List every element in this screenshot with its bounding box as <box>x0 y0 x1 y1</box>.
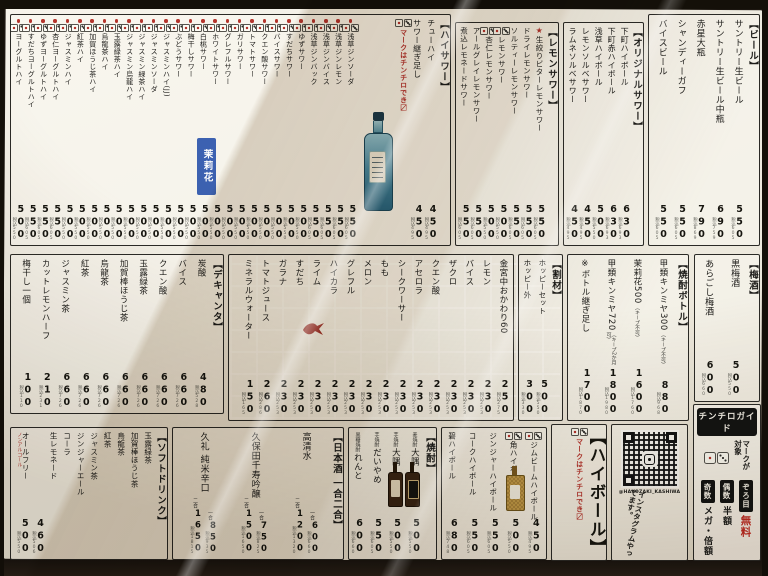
item-name: すだち <box>294 259 303 286</box>
menu-item: 生レモネード <box>47 432 61 555</box>
red-dot <box>152 19 156 23</box>
blue-stamp: 茉莉花 <box>197 138 216 195</box>
dice-icon <box>525 432 542 440</box>
price-value: 600 <box>311 521 320 556</box>
price-value: 660 <box>101 372 111 410</box>
price-value: 630 <box>622 204 632 242</box>
item-price: 税込253230 <box>360 379 374 417</box>
item-name: ジンジャーエール <box>76 432 84 496</box>
price-value: 230 <box>483 379 493 417</box>
item-name: 赤星大瓶 <box>694 19 703 57</box>
menu-item: 黒糖焼酎れんと税込660600 <box>348 432 367 555</box>
star-icon: ★ <box>536 27 543 35</box>
item-name: ガラナ <box>277 259 286 286</box>
item-name: 浅草ジンソーダ <box>347 33 354 86</box>
instagram-box: @HAKOZAKI_KASHIWA インスタグラムやってます。 <box>611 424 688 561</box>
section-warizai: 【割材】 ホッピーセット税込550500ホッピー外税込330300 <box>518 254 563 421</box>
chinchiro-note-text: マークはチンチロでき〼 <box>399 29 406 112</box>
chinchiro-rule-odd: 奇数 メガ・倍額 <box>701 480 715 556</box>
item-price: 税込693630 <box>617 204 631 242</box>
item-name: 紅茶 <box>103 432 111 448</box>
rule-roll: ぞろ目 <box>739 480 753 512</box>
item-name: 梅干しサワー <box>187 33 194 78</box>
item-name: 甲類キンミヤ300 <box>658 259 667 331</box>
item-name: 白桃サワー <box>199 33 206 71</box>
item-name: 烏龍茶 <box>117 432 125 456</box>
item-name: 下町赤ハイボール <box>607 27 615 95</box>
item-price: 税込759690 <box>711 204 725 242</box>
menu-item: シャンディーガフ税込605550 <box>671 19 690 241</box>
red-dot <box>275 19 279 23</box>
item-name: ミネラルウォーター <box>243 259 252 340</box>
item-name: ジャスミン緑茶ハイ <box>138 33 145 101</box>
menu-item: 加賀棒ほうじ茶税込726660 <box>113 259 133 409</box>
menu-item: 加賀棒ほうじ茶 <box>128 432 142 555</box>
menu-item: 高清水一合税込660600二合税込13201200 <box>280 432 331 555</box>
chinchiro-note: マークはチンチロでき〼 <box>397 19 410 241</box>
item-price: 500 <box>20 518 30 556</box>
section-title-lemon-sour: 【レモンサワー】 <box>547 27 557 241</box>
item-price: 税込253230 <box>275 379 289 417</box>
price-value: 230 <box>296 379 306 417</box>
dice-icon <box>505 432 522 440</box>
item-price: 税込605550 <box>654 204 668 242</box>
item-name: メロン <box>362 259 371 286</box>
item-price: 税込550500 <box>407 518 421 556</box>
price-value: 660 <box>62 372 72 410</box>
menu-item: 黒梅酒税込550500 <box>721 259 747 397</box>
item-name: ヨーグルトハイ <box>15 33 22 86</box>
menu-item: ★生絞りビターレモンサワー税込605550 <box>533 27 546 241</box>
instagram-caption: インスタグラムやってます。 <box>614 488 646 561</box>
price-value: 550 <box>490 518 500 556</box>
price-value: 1650 <box>194 509 203 555</box>
red-dot <box>17 19 21 23</box>
item-name: ホッピー外 <box>523 259 531 299</box>
item-name: 久保田千寿吟醸 <box>249 432 258 499</box>
item-price: 税込18701700 <box>578 368 592 416</box>
item-price: 税込231210 <box>38 372 52 410</box>
red-dot <box>312 19 316 23</box>
red-dot <box>226 19 230 23</box>
item-prefix: 芋焼酎 <box>393 432 398 447</box>
item-note: （キープ不可） <box>660 332 665 367</box>
item-name: アールグレイレモンサワー <box>472 27 480 123</box>
item-name: グレフル <box>345 259 354 295</box>
item-price: 税込330300 <box>520 379 534 417</box>
menu-item: 碧ハイボール税込748680 <box>442 432 463 555</box>
price-value: 500 <box>412 518 422 556</box>
item-price: 税込495450 <box>410 204 424 242</box>
section-title-decanter: 【デキャンタ】 <box>212 259 222 409</box>
item-name: 生レモネード <box>49 432 57 480</box>
red-dot <box>78 19 82 23</box>
item-name: 甲類キンミヤ720 <box>606 259 615 331</box>
menu-item: 浅草ハイボール税込550500 <box>592 27 605 241</box>
menu-item: 煮込レモネードサワー税込605550 <box>457 27 470 241</box>
red-dot <box>349 19 353 23</box>
menu-item: 赤星大瓶税込869790 <box>690 19 709 241</box>
price-value: 250 <box>500 379 510 417</box>
price-value: 500 <box>511 518 521 556</box>
item-name: ドライレモンサワー <box>523 27 531 99</box>
menu-item: ジャスミン茶税込726660 <box>55 259 75 409</box>
unit-label: 一合 <box>207 510 214 520</box>
item-price: 一合税込935850 <box>204 510 217 556</box>
red-dot <box>324 19 328 23</box>
item-price: 税込726660 <box>116 372 130 410</box>
menu-item: 下町赤ハイボール税込693630 <box>605 27 618 241</box>
item-name: ※ボトル継ぎ足し <box>580 259 589 333</box>
item-name: サワー継ぎ足し <box>412 19 420 79</box>
menu-item: クエン酸税込253230 <box>426 259 443 416</box>
item-price: 税込19801800 <box>604 368 618 416</box>
menu-item: 金宮中おかわり60税込275250 <box>494 259 511 416</box>
item-price: 税込605550 <box>369 518 383 556</box>
menu-item: ガラナ税込253230 <box>273 259 290 416</box>
item-name: ソルティーレモンサワー <box>510 27 518 115</box>
menu-item: レモンソルベサワー税込495450 <box>579 27 592 241</box>
menu-item: コークハイボール税込605550 <box>462 432 483 555</box>
item-price: 税込253230 <box>326 379 340 417</box>
item-name: バイス <box>177 259 186 286</box>
item-price: 税込110100 <box>18 372 32 410</box>
menu-item: 浅草ジンソーダ税込605550 <box>344 19 356 241</box>
menu-item: ※ボトル継ぎ足し税込18701700 <box>572 259 598 416</box>
item-name: シークワーサー <box>396 259 405 322</box>
item-name: ジャスミン烏龍ハイ <box>125 33 132 101</box>
unit-label: 二合 <box>192 498 199 508</box>
photo-edge-top <box>0 0 768 9</box>
price-value: 230 <box>466 379 476 417</box>
item-name: 浅草ジンレモン <box>335 33 342 86</box>
menu-item: 玉露緑茶税込726660 <box>133 259 153 409</box>
menu-item: 烏龍茶 <box>114 432 128 555</box>
item-name: 杏仁ヨーグルトハイ <box>52 33 59 101</box>
item-name: ホッピーセット <box>538 259 546 315</box>
menu-item: ミネラルウォーター税込165150 <box>239 259 256 416</box>
blue-stamp-text: 茉莉花 <box>200 149 214 184</box>
section-title-umeshu: 【梅酒】 <box>748 259 758 397</box>
item-price: 税込253230 <box>411 379 425 417</box>
item-name: 紅茶 <box>79 259 88 277</box>
item-price: 税込726660 <box>77 372 91 410</box>
chinchiro-guide: チンチロガイド マークが対象 ぞろ目 無料 偶数 半額 奇数 メガ・倍額 <box>693 404 761 561</box>
menu-item: ハイカラ税込253230 <box>324 259 341 416</box>
item-prefix: 黒糖焼酎 <box>355 432 360 452</box>
price-value: 100 <box>23 372 33 410</box>
red-dot <box>250 19 254 23</box>
section-mixers: 金宮中おかわり60税込275250レモン税込253230バイス税込253230ザ… <box>228 254 514 421</box>
item-name: 梅干し一個 <box>21 259 30 304</box>
section-title-shochu-bottle: 【焼酎ボトル】 <box>677 259 687 416</box>
item-price: 税込495450 <box>527 518 541 556</box>
red-dot <box>164 19 168 23</box>
item-price: 税込726660 <box>174 372 188 410</box>
item-price: 税込605550 <box>673 204 687 242</box>
item-name: すだちサワー <box>285 33 292 78</box>
item-name: グレフルサワー <box>224 33 231 86</box>
item-name: 杏仁レモンサワー <box>485 36 493 100</box>
price-value: 500 <box>393 518 403 556</box>
red-dot <box>103 19 107 23</box>
item-name: サントリー生ビール中瓶 <box>713 19 722 124</box>
red-dot <box>299 19 303 23</box>
item-price: 税込550500 <box>591 204 605 242</box>
price-value: 1500 <box>245 509 254 555</box>
price-value: 150 <box>245 379 255 417</box>
chinchiro-note-text: マークはチンチロでき〼 <box>575 438 582 521</box>
item-name: ジャスミン茶 <box>90 432 98 480</box>
menu-item: ホッピー外税込330300 <box>520 259 535 416</box>
item-price: 税込550500 <box>388 518 402 556</box>
red-dot <box>41 19 45 23</box>
menu-item: アセロラ税込253230 <box>409 259 426 416</box>
red-dot <box>189 19 193 23</box>
item-name: ザクロ <box>447 259 456 286</box>
item-name: ゆずヨーグルトハイ <box>39 33 46 101</box>
price-value: 600 <box>705 360 715 398</box>
section-original-sour: 【オリジナルサワー】 下町ハイボール税込693630下町赤ハイボール税込6936… <box>563 22 644 246</box>
rule-roll: 偶数 <box>720 480 734 503</box>
item-name: コーラ <box>63 432 71 456</box>
price-value: 230 <box>347 379 357 417</box>
price-value: 550 <box>735 204 745 242</box>
menu-item: 烏龍茶税込726660 <box>94 259 114 409</box>
chinchiro-target: マークが対象 <box>733 440 750 476</box>
item-name: 玉露緑茶 <box>138 259 147 295</box>
menu-item: グレフル税込253230 <box>341 259 358 416</box>
item-price: 税込165150 <box>241 379 255 417</box>
chinchiro-guide-title: チンチロガイド <box>697 408 757 436</box>
item-name: ジンジャーハイボール <box>489 432 497 512</box>
chinchiro-rule-zorome: ぞろ目 無料 <box>739 480 754 556</box>
price-value: 550 <box>678 204 688 242</box>
price-value: 450 <box>414 204 424 242</box>
dice-icon <box>571 428 588 436</box>
menu-item: もも税込253230 <box>375 259 392 416</box>
item-name: 生絞りビターレモンサワー <box>535 36 543 132</box>
item-name: ジムビームハイボール <box>530 441 538 521</box>
menu-item: 紅茶税込726660 <box>74 259 94 409</box>
item-name: ジャスミン茶 <box>60 259 69 313</box>
item-price: 税込550500 <box>506 518 520 556</box>
item-price: 税込253230 <box>445 379 459 417</box>
item-price: 税込605550 <box>730 204 744 242</box>
red-dot <box>176 19 180 23</box>
menu-item: クエン酸税込726660 <box>152 259 172 409</box>
item-name: ジャスミンソーダ <box>150 33 157 93</box>
item-name: ハイカラ <box>328 259 337 295</box>
unit-label: 一合 <box>258 510 265 520</box>
item-name: もも <box>379 259 388 277</box>
price-value: 230 <box>415 379 425 417</box>
item-name: 加賀棒ほうじ茶 <box>118 259 127 322</box>
price-value: 660 <box>120 372 130 410</box>
item-name: 高清水 <box>300 432 309 461</box>
rule-result: 半額 <box>720 506 733 526</box>
item-price: 税込253230 <box>309 379 323 417</box>
item-price: 税込253230 <box>394 379 408 417</box>
menu-item: 久礼 純米辛口一合税込935850二合税込18151650 <box>178 432 229 555</box>
item-price: 税込605550 <box>532 204 546 242</box>
menu-item: 久保田千寿吟醸一合税込825750二合税込16501500 <box>229 432 280 555</box>
item-name: ホワイトサワー <box>212 33 219 86</box>
photo-edge-bottom <box>0 560 768 576</box>
section-shochu-bottle: 【焼酎ボトル】 甲類キンミヤ300（キープ不可）税込968880茉莉花500（キ… <box>567 254 689 421</box>
menu-item: ジンジャーハイボール税込605550 <box>483 432 504 555</box>
red-dot <box>140 19 144 23</box>
menu-item: サワー継ぎ足し税込495450 <box>410 19 424 241</box>
item-name: クエン酸 <box>157 259 166 295</box>
item-name: ジャスミンハイ(JJ) <box>162 33 169 97</box>
price-value: 660 <box>140 372 150 410</box>
item-price: 税込726660 <box>96 372 110 410</box>
gin-bottle-illustration <box>358 112 398 216</box>
item-name: バイスサワー <box>273 33 280 78</box>
izakaya-menu-photo: 【ハイサワー】 チューハイ税込495450サワー継ぎ足し税込495450 マーク… <box>0 0 768 576</box>
price-value: 680 <box>449 518 459 556</box>
menu-item: 芋焼酎だいやめ税込605550 <box>367 432 386 555</box>
item-name: 下町ハイボール <box>620 27 628 87</box>
item-price: 税込253230 <box>377 379 391 417</box>
item-price: 税込726660 <box>155 372 169 410</box>
section-highball-items: ジムビームハイボール税込495450角ハイボール税込550500ジンジャーハイボ… <box>441 427 547 560</box>
item-name: ライム <box>311 259 320 286</box>
red-dot <box>29 19 33 23</box>
item-name: 茉莉花500 <box>632 259 641 304</box>
item-name: ジャスミンハイ <box>64 33 71 86</box>
price-value: 1600 <box>634 368 644 416</box>
highball-title: 【ハイボール】 <box>588 428 605 557</box>
price-value: 880 <box>660 380 670 416</box>
item-price: 税込550500 <box>727 360 741 398</box>
section-title-softdrink: 【ソフトドリンク】 <box>156 432 166 555</box>
item-price: 税込253230 <box>343 379 357 417</box>
menu-item: あらごし梅酒税込660600 <box>695 259 721 397</box>
unit-label: 二合 <box>243 498 250 508</box>
item-name: クエン酸サワー <box>261 33 268 86</box>
price-value: 1700 <box>582 368 592 416</box>
item-name: 紅茶ハイ <box>76 33 83 63</box>
item-name: 浅草ハイボール <box>594 27 602 87</box>
item-name: 碧ハイボール <box>448 432 456 480</box>
item-price: 税込275250 <box>496 379 510 417</box>
price-value: 230 <box>279 379 289 417</box>
item-price: 税込495450 <box>578 204 592 242</box>
red-dot <box>213 19 217 23</box>
item-price: 一合税込660600 <box>306 510 319 556</box>
price-value: 660 <box>179 372 189 410</box>
item-name: トマトジュース <box>260 259 269 322</box>
item-name: 浅草ジンバック <box>310 33 317 86</box>
item-name: チューハイ <box>426 19 434 62</box>
item-name: 浅草ジンバイス <box>322 33 329 86</box>
item-price: 税込748680 <box>445 518 459 556</box>
price-value: 550 <box>537 204 547 242</box>
menu-item: ソルティーレモンサワー税込605550 <box>508 27 521 241</box>
price-value: 1200 <box>296 509 305 555</box>
red-dot <box>66 19 70 23</box>
item-name: ラムネソルベサワー <box>568 27 576 104</box>
item-price: 税込968880 <box>656 380 670 416</box>
rule-result: 無料 <box>739 515 754 538</box>
menu-item: メロン税込253230 <box>358 259 375 416</box>
price-value: 660 <box>81 372 91 410</box>
menu-item: ジムビームハイボール税込495450 <box>524 432 545 555</box>
menu-item: 茉莉花500（キープ不可）税込17601600 <box>624 259 650 416</box>
section-title-warizai: 【割材】 <box>551 259 561 416</box>
item-prefix: 芋焼酎 <box>374 432 379 447</box>
shochu-bottles-illustration <box>388 462 418 507</box>
item-price: 二合税込13201200 <box>291 498 304 555</box>
section-highball-header: 【ハイボール】 マークはチンチロでき〼 <box>551 424 607 561</box>
section-title-sake: 【日本酒 一合二合】 <box>332 432 342 555</box>
red-dot <box>287 19 291 23</box>
item-price: 税込869790 <box>692 204 706 242</box>
price-value: 210 <box>42 372 52 410</box>
price-value: 550 <box>470 518 480 556</box>
item-price: 二合税込16501500 <box>240 498 253 555</box>
item-name: カットレモンハーフ <box>40 259 49 340</box>
menu-item: サントリー生ビール税込605550 <box>728 19 747 241</box>
price-value: 300 <box>525 379 535 417</box>
item-price: 税込253230 <box>479 379 493 417</box>
rule-roll: 奇数 <box>701 480 715 503</box>
red-dot <box>127 19 131 23</box>
item-name: 玉露緑茶ハイ <box>113 33 120 78</box>
section-title-original-sour: 【オリジナルサワー】 <box>632 27 642 241</box>
red-dot <box>53 19 57 23</box>
price-value: 480 <box>198 372 208 410</box>
qr-code <box>621 430 679 488</box>
dice-icon <box>704 452 729 464</box>
menu-item: コーラ <box>60 432 74 555</box>
menu-item: 炭酸税込528480 <box>191 259 211 409</box>
softdrink-price: 460 <box>36 518 46 556</box>
item-price: 税込495450 <box>424 204 438 242</box>
chinchiro-rule-even: 偶数 半額 <box>720 480 734 556</box>
red-dot <box>90 19 94 23</box>
item-price: 税込660600 <box>701 360 715 398</box>
item-price: 税込253230 <box>292 379 306 417</box>
chinchiro-note-highball: マークはチンチロでき〼 <box>571 428 588 557</box>
item-name: 烏龍茶ハイ <box>101 33 108 71</box>
item-price: 税込726660 <box>135 372 149 410</box>
item-name: レモンサワー <box>498 36 506 84</box>
menu-item: チューハイ税込495450 <box>424 19 438 241</box>
red-dot <box>201 19 205 23</box>
section-lemon-sour: 【レモンサワー】 ★生絞りビターレモンサワー税込605550ドライレモンサワー税… <box>455 22 559 246</box>
rule-result: メガ・倍額 <box>701 506 714 556</box>
price-value: 750 <box>260 521 269 556</box>
price-value: 230 <box>381 379 391 417</box>
item-price: 税込605550 <box>343 204 357 242</box>
photo-edge-left <box>0 0 4 576</box>
item-name: 玉露緑茶 <box>144 432 152 464</box>
menu-item: レモンサワー税込550500 <box>495 27 508 241</box>
price-value: 230 <box>330 379 340 417</box>
price-value: 230 <box>313 379 323 417</box>
item-price: 税込495450 <box>565 204 579 242</box>
item-note: （キープ2か月可） <box>606 332 616 368</box>
menu-item: 玉露緑茶 <box>141 432 155 555</box>
red-bird-illustration <box>301 320 325 342</box>
item-name: ゆずサワー <box>298 33 305 71</box>
item-prefix: 麦焼酎 <box>412 432 417 447</box>
item-name: 久礼 純米辛口 <box>198 432 207 492</box>
whisky-bottle-illustration <box>506 466 523 511</box>
